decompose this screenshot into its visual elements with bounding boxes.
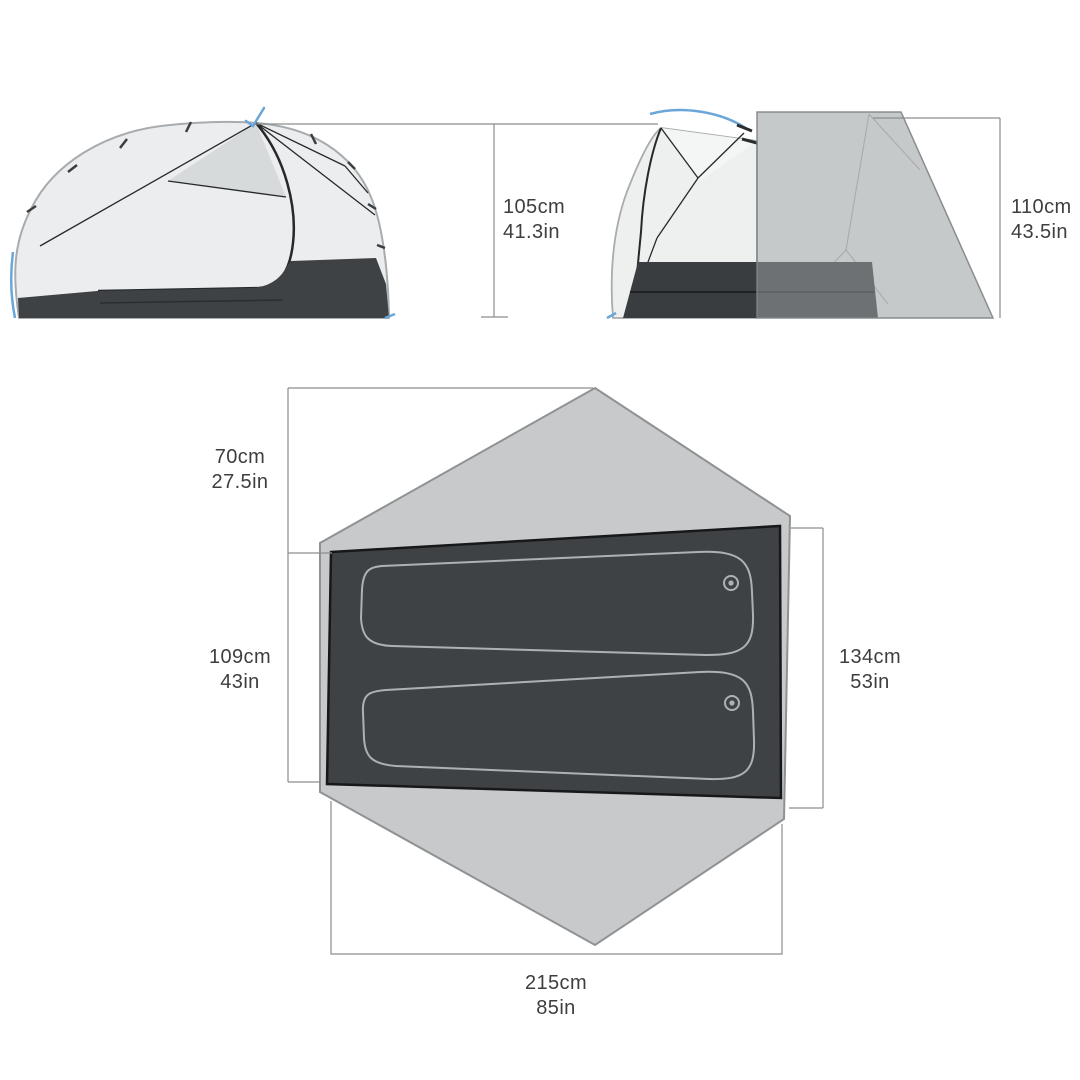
vestibule-depth-cm: 70cm: [185, 445, 295, 470]
fly-height-cm: 110cm: [1011, 195, 1072, 220]
floor-width-right-label: 134cm 53in: [815, 645, 925, 695]
floor-width-right-in: 53in: [815, 670, 925, 695]
tent-side-view: [11, 108, 395, 318]
blue-pole-tip-icon: [11, 252, 15, 318]
side-height-in: 41.3in: [503, 220, 565, 245]
side-height-cm: 105cm: [503, 195, 565, 220]
fly-height-label: 110cm 43.5in: [1011, 195, 1072, 245]
vestibule-depth-label: 70cm 27.5in: [185, 445, 295, 495]
floor-width-left-label: 109cm 43in: [185, 645, 295, 695]
tent-front-view: [607, 110, 993, 318]
tent-spec-diagram: 105cm 41.3in 110cm 43.5in 70cm 27.5in 10…: [0, 0, 1080, 1080]
floor-plan: [288, 388, 823, 954]
floor-length-in: 85in: [501, 996, 611, 1021]
floor-width-right-cm: 134cm: [815, 645, 925, 670]
floor-length-cm: 215cm: [501, 971, 611, 996]
floor-length-label: 215cm 85in: [501, 971, 611, 1021]
diagram-canvas: [0, 0, 1080, 1080]
vestibule-depth-in: 27.5in: [185, 470, 295, 495]
pad-valve-icon: [728, 580, 733, 585]
side-height-label: 105cm 41.3in: [503, 195, 565, 245]
blue-ridge-icon: [650, 110, 747, 129]
fly-height-in: 43.5in: [1011, 220, 1072, 245]
floor-width-left-in: 43in: [185, 670, 295, 695]
pad-valve-icon: [729, 700, 734, 705]
floor-width-left-cm: 109cm: [185, 645, 295, 670]
tent-floor: [327, 526, 781, 798]
